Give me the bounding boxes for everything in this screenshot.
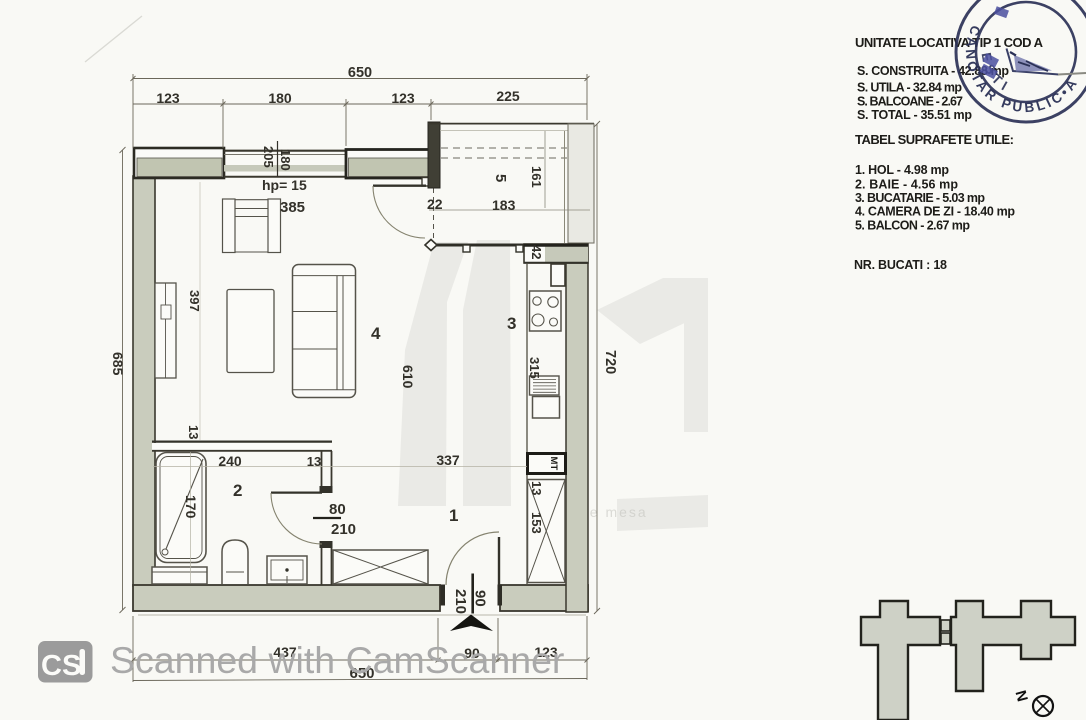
svg-text:S. UTILA - 32.84 mp: S. UTILA - 32.84 mp [857,81,962,95]
svg-text:hp= 15: hp= 15 [262,177,307,193]
svg-text:UNITATE LOCATIVA TIP 1 COD A: UNITATE LOCATIVA TIP 1 COD A [855,35,1044,50]
svg-text:315: 315 [527,357,542,379]
svg-text:180: 180 [268,90,292,106]
svg-text:720: 720 [602,350,618,374]
svg-text:4. CAMERA DE ZI - 18.40 mp: 4. CAMERA DE ZI - 18.40 mp [855,205,1015,219]
svg-text:5: 5 [492,174,509,182]
svg-text:397: 397 [187,290,202,312]
svg-text:210: 210 [452,589,469,614]
svg-text:S. TOTAL - 35.51 mp: S. TOTAL - 35.51 mp [857,108,972,122]
svg-text:2: 2 [233,481,242,500]
svg-text:183: 183 [492,197,516,213]
svg-text:4: 4 [371,324,381,343]
svg-text:NR. BUCATI : 18: NR. BUCATI : 18 [854,258,947,272]
svg-text:385: 385 [280,199,305,216]
svg-text:123: 123 [391,90,415,106]
svg-text:S. BALCOANE - 2.67: S. BALCOANE - 2.67 [857,95,963,109]
svg-text:13: 13 [307,454,321,469]
svg-text:337: 337 [436,452,460,468]
svg-text:CS: CS [41,650,81,682]
svg-text:5. BALCON - 2.67 mp: 5. BALCON - 2.67 mp [855,219,970,233]
svg-text:3. BUCATARIE - 5.03 mp: 3. BUCATARIE - 5.03 mp [855,191,985,205]
svg-text:153: 153 [529,512,544,534]
svg-text:205: 205 [261,146,276,168]
svg-text:80: 80 [329,501,346,518]
svg-text:170: 170 [183,495,199,519]
svg-text:610: 610 [400,365,416,389]
svg-text:240: 240 [218,453,242,469]
svg-text:180: 180 [278,149,293,171]
svg-text:MT: MT [548,457,559,471]
svg-text:210: 210 [331,521,356,538]
svg-text:1: 1 [449,506,458,525]
svg-text:1. HOL - 4.98 mp: 1. HOL - 4.98 mp [855,163,949,177]
svg-text:90: 90 [472,590,489,607]
svg-text:ne mesa: ne mesa [580,504,648,520]
svg-text:22: 22 [427,196,443,212]
svg-text:Scanned with CamScanner: Scanned with CamScanner [110,639,564,681]
svg-text:161: 161 [529,166,544,188]
svg-text:3: 3 [507,314,516,333]
svg-text:685: 685 [110,352,126,376]
svg-text:123: 123 [156,90,180,106]
svg-text:13: 13 [529,481,544,495]
svg-text:TABEL SUPRAFETE UTILE:: TABEL SUPRAFETE UTILE: [855,132,1014,147]
svg-text:225: 225 [496,88,520,104]
svg-text:650: 650 [348,65,372,81]
svg-text:2. BAIE - 4.56 mp: 2. BAIE - 4.56 mp [855,178,958,192]
svg-text:42: 42 [529,245,544,259]
svg-text:13: 13 [186,425,201,439]
